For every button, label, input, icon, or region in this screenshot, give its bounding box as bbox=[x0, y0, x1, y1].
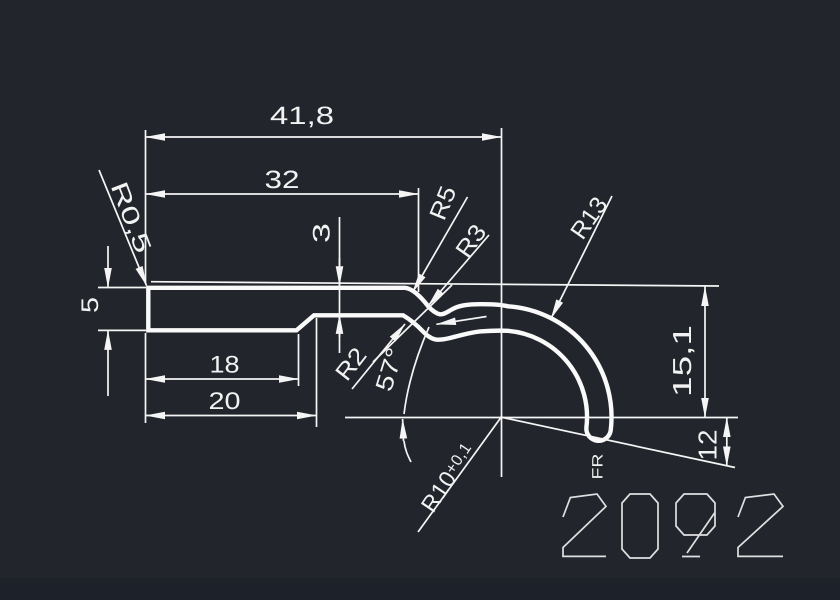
svg-text:FR: FR bbox=[590, 453, 607, 479]
svg-text:32: 32 bbox=[265, 166, 300, 194]
svg-text:18: 18 bbox=[210, 352, 240, 379]
svg-text:12: 12 bbox=[693, 430, 723, 461]
svg-text:5: 5 bbox=[77, 297, 104, 313]
svg-text:3: 3 bbox=[309, 223, 336, 243]
svg-text:15,1: 15,1 bbox=[667, 325, 697, 397]
svg-text:41,8: 41,8 bbox=[270, 102, 334, 130]
svg-text:20: 20 bbox=[209, 388, 241, 415]
